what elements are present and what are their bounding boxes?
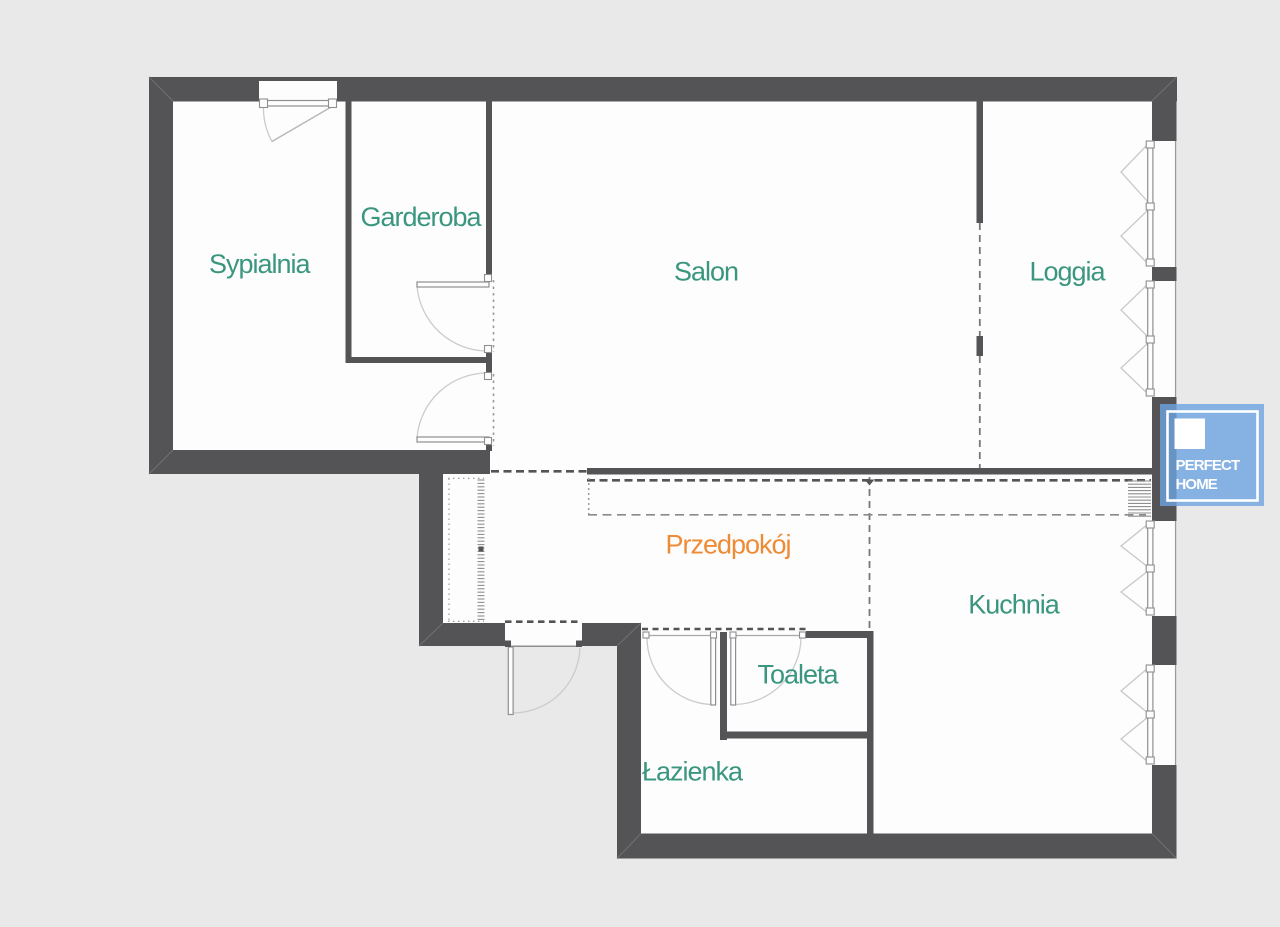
svg-text:Łazienka: Łazienka — [642, 757, 744, 787]
svg-text:Przedpokój: Przedpokój — [665, 530, 790, 560]
svg-text:Kuchnia: Kuchnia — [968, 590, 1061, 620]
svg-text:HOME: HOME — [1176, 476, 1218, 493]
svg-text:Garderoba: Garderoba — [360, 202, 482, 232]
svg-text:Toaleta: Toaleta — [757, 660, 839, 690]
svg-text:Salon: Salon — [674, 257, 738, 287]
svg-text:PERFECT: PERFECT — [1176, 457, 1240, 474]
svg-text:Sypialnia: Sypialnia — [209, 249, 312, 279]
svg-text:Loggia: Loggia — [1029, 257, 1106, 287]
